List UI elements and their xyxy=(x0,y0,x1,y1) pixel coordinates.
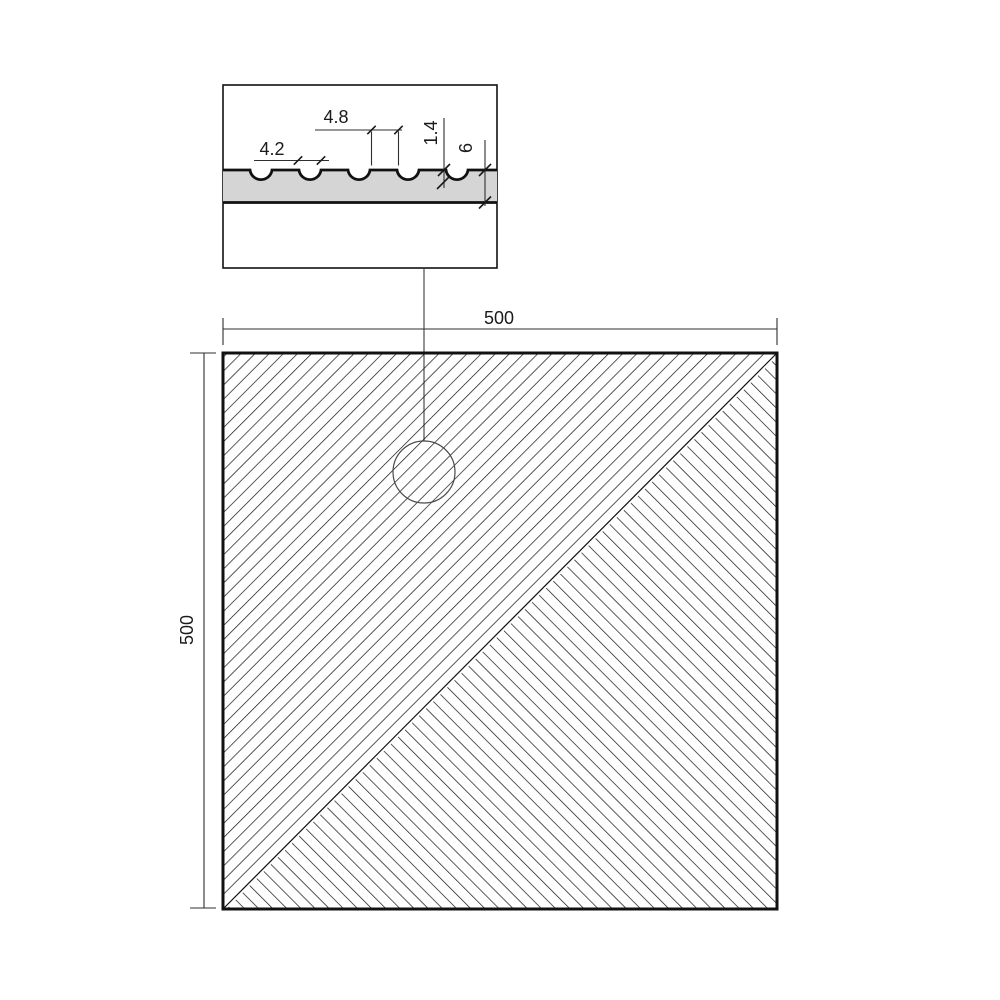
strip-thickness-value: 6 xyxy=(456,143,476,153)
groove-width-value: 4.2 xyxy=(259,139,284,159)
plan-height-value: 500 xyxy=(177,615,197,645)
technical-drawing-page: 4.2 4.8 1.4 6 xyxy=(0,0,1000,1000)
detail-section-view: 4.2 4.8 1.4 6 xyxy=(223,85,497,268)
technical-drawing-canvas: 4.2 4.8 1.4 6 xyxy=(0,0,1000,1000)
groove-spacing-value: 4.8 xyxy=(323,107,348,127)
detail-view-frame xyxy=(223,85,497,268)
groove-depth-value: 1.4 xyxy=(421,120,441,145)
plan-view: 500 500 xyxy=(177,308,777,909)
plan-width-value: 500 xyxy=(484,308,514,328)
